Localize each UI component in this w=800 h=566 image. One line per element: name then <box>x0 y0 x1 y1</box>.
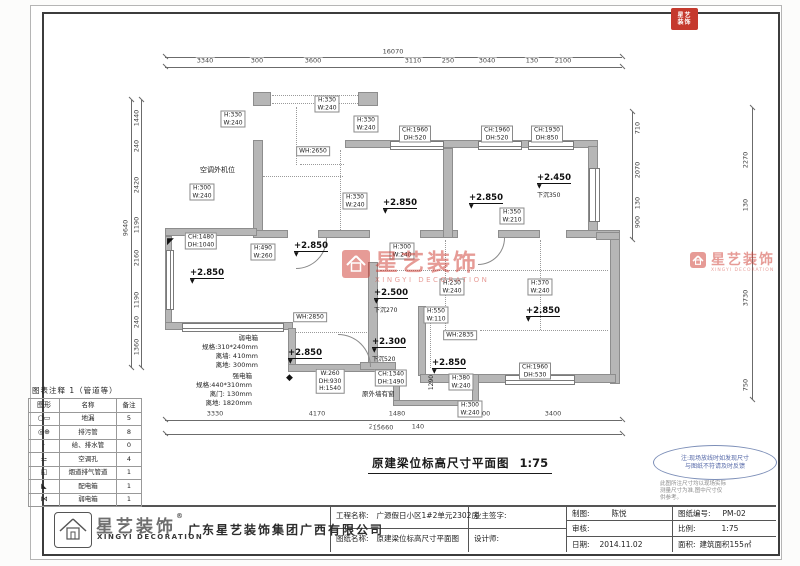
legend-item-count: 1 <box>117 493 142 507</box>
elevation-marker: +2.850▼ <box>432 350 466 374</box>
beam-size-label: H:380W:240 <box>448 374 473 391</box>
legend-item-count: 4 <box>117 453 142 467</box>
plan-annotation: 1290 <box>427 375 436 390</box>
dimension-value: 250 <box>441 58 455 65</box>
elevation-marker: +2.850▼ <box>383 190 417 214</box>
elevation-marker: +2.850▼ <box>288 340 322 364</box>
dimension-value: 2070 <box>635 161 642 180</box>
legend-row: ◱烟道排气管道1 <box>29 466 142 480</box>
field-area-value: 建筑面积155㎡ <box>700 540 752 549</box>
dimension-value: 2160 <box>134 249 141 268</box>
beam-dotted-line <box>295 332 367 333</box>
dimension-value: 140 <box>411 424 425 431</box>
field-project-value: 广源假日小区1#2单元2302房 <box>377 511 479 520</box>
legend-symbol-icon: · <box>29 439 60 453</box>
watermark-cn-text: 星艺装饰 <box>375 250 489 276</box>
dimension-value: 2270 <box>743 151 750 170</box>
dimension-value: 16070 <box>382 49 405 56</box>
beam-size-label: WH:2835 <box>443 330 477 340</box>
dimension-value: 3600 <box>304 58 323 65</box>
wall-segment <box>253 140 263 238</box>
beam-size-label: H:330W:240 <box>220 111 245 128</box>
dimension-value: 130 <box>635 196 642 210</box>
field-date-value: 2014.11.02 <box>600 540 643 549</box>
beam-size-label: W:260DH:930H:1540 <box>316 369 345 394</box>
dimension-value: 1480 <box>388 411 407 418</box>
wall-segment <box>443 148 453 238</box>
field-date: 日期:2014.11.02 <box>572 539 642 550</box>
beam-size-label: H:330W:240 <box>342 193 367 210</box>
legend-item-name: 配电箱 <box>60 480 117 494</box>
legend-table: 图表注释 1（管道等） 图形 名称 备注 ○▭地漏5◎⊕排污管8·给、排水管0⚍… <box>28 385 142 507</box>
beam-size-label: CH:1960DH:530 <box>519 363 551 380</box>
dimension-value: 3730 <box>743 289 750 308</box>
site-note-small: 此图所注尺寸均以现场实际 测量尺寸为准,图中尺寸仅 供参考。 <box>660 481 726 502</box>
legend-header-count: 备注 <box>117 399 142 413</box>
legend-symbol-icon: ◣ <box>29 480 60 494</box>
drawing-title-text: 原建梁位标高尺寸平面图 <box>372 456 510 470</box>
field-scale-value: 1:75 <box>722 524 739 533</box>
dimension-value: 1360 <box>134 338 141 357</box>
drawing-title-scale: 1:75 <box>520 456 549 470</box>
dimension-line <box>165 67 622 68</box>
window <box>589 168 600 222</box>
beam-size-label: CH:1340DH:1490 <box>375 370 407 387</box>
dimension-value: 240 <box>134 139 141 153</box>
titleblock-row-line <box>566 536 776 537</box>
beam-size-label: CH:1930DH:850 <box>531 126 563 143</box>
watermark-en-text: XINGYI DECORATION <box>375 276 489 284</box>
dimension-value: 9640 <box>123 219 130 238</box>
registered-mark: ® <box>176 512 186 520</box>
watermark-cn-text: 星艺装饰 <box>711 252 775 268</box>
xingyi-logo-icon <box>342 250 370 278</box>
plan-symbol: ◤ <box>167 238 174 247</box>
legend-symbol-icon: ○▭ <box>29 412 60 426</box>
dimension-line <box>165 434 622 435</box>
field-owner-sign: 业主签字: <box>474 510 507 521</box>
legend-row: ◣配电箱1 <box>29 480 142 494</box>
field-draft-value: 陈悦 <box>612 509 627 518</box>
wall-segment <box>253 230 288 238</box>
plan-annotation: 原外墙有窗 <box>362 390 395 399</box>
field-draft: 制图:陈悦 <box>572 508 627 519</box>
beam-size-label: WH:2650 <box>296 146 330 156</box>
elevation-marker: +2.850▼ <box>294 233 328 257</box>
wall-segment <box>596 232 620 240</box>
dimension-value: 130 <box>743 198 750 212</box>
stamp-line-2: 装饰 <box>677 19 691 26</box>
legend-item-count: 1 <box>117 480 142 494</box>
elevation-marker: +2.850▼ <box>469 185 503 209</box>
titleblock-divider <box>566 505 567 552</box>
note-line-2: 与图纸不符请及时反馈 <box>685 463 745 471</box>
plan-annotation: 弱电箱规格:310*240mm离墙: 410mm离地: 300mm <box>178 334 258 370</box>
elevation-marker: +2.450▼下沉350 <box>537 165 571 199</box>
field-drawing: 图纸名称:原建梁位标高尺寸平面图 <box>336 533 459 544</box>
plan-symbol: ◆ <box>286 374 293 383</box>
legend-symbol-icon: ⋈ <box>29 493 60 507</box>
dimension-value: 3110 <box>404 58 423 65</box>
beam-size-label: CH:1480DH:1040 <box>185 233 217 250</box>
field-drawing-value: 原建梁位标高尺寸平面图 <box>377 534 460 543</box>
beam-size-label: CH:1960DH:520 <box>481 126 513 143</box>
beam-size-label: H:490W:260 <box>250 244 275 261</box>
field-no-value: PM-02 <box>723 509 746 518</box>
field-scale: 比例:1:75 <box>678 523 738 534</box>
legend-item-name: 给、排水管 <box>60 439 117 453</box>
beam-dotted-line <box>340 150 341 232</box>
drawing-title: 原建梁位标高尺寸平面图1:75 <box>368 455 552 474</box>
titleblock-separator <box>42 505 776 507</box>
wall-segment <box>498 230 540 238</box>
elevation-marker: +2.500▼下沉270 <box>374 280 408 314</box>
beam-size-label: H:300W:240 <box>457 401 482 418</box>
beam-dotted-line <box>263 176 343 177</box>
dimension-value: 1440 <box>134 109 141 128</box>
elevation-marker: +2.850▼ <box>190 260 224 284</box>
field-designer: 设计师: <box>474 533 499 544</box>
note-small-1: 此图所注尺寸均以现场实际 <box>660 481 726 488</box>
elevation-marker: +2.300▼下沉520 <box>372 329 406 363</box>
wall-segment <box>253 92 271 106</box>
wall-segment <box>358 92 378 106</box>
plan-annotation: 空调外机位 <box>200 166 235 175</box>
legend-symbol-icon: ⚍ <box>29 453 60 467</box>
beam-size-label: H:300W:240 <box>189 184 214 201</box>
stamp-line-1: 星艺 <box>677 12 691 19</box>
note-small-2: 测量尺寸为准,图中尺寸仅 <box>660 488 726 495</box>
elevation-marker: +2.850▼ <box>526 298 560 322</box>
dimension-value: 3040 <box>478 58 497 65</box>
field-audit: 审核: <box>572 523 590 534</box>
site-note-ellipse: 注:现场放线时如发现尺寸 与图纸不符请及时反馈 <box>653 445 777 480</box>
beam-dotted-line <box>480 330 608 331</box>
watermark-en-text: XINGYI DECORATION <box>711 268 775 273</box>
dimension-value: 1190 <box>134 216 141 235</box>
dimension-value: 3400 <box>544 411 563 418</box>
legend-header-name: 名称 <box>60 399 117 413</box>
right-watermark: 星艺装饰 XINGYI DECORATION <box>690 252 775 273</box>
field-project: 工程名称:广源假日小区1#2单元2302房 <box>336 510 479 521</box>
dimension-line <box>141 100 142 368</box>
beam-dotted-line <box>300 164 344 165</box>
red-company-stamp: 星艺 装饰 <box>671 8 698 30</box>
legend-symbol-icon: ◱ <box>29 466 60 480</box>
legend-item-name: 排污管 <box>60 426 117 440</box>
beam-size-label: CH:1960DH:520 <box>399 126 431 143</box>
dimension-value: 1190 <box>134 291 141 310</box>
legend-item-count: 1 <box>117 466 142 480</box>
legend-row: ⚍空调孔4 <box>29 453 142 467</box>
note-small-3: 供参考。 <box>660 495 726 502</box>
dimension-value: 240 <box>134 315 141 329</box>
beam-dotted-line <box>296 107 297 165</box>
beam-size-label: H:550W:110 <box>423 307 448 324</box>
dimension-value: 710 <box>635 121 642 135</box>
titleblock-row-line <box>566 520 776 521</box>
note-line-1: 注:现场放线时如发现尺寸 <box>681 455 749 463</box>
door-swing <box>338 334 371 367</box>
plan-annotation: 强电箱规格:440*310mm离门: 130mm离地: 1820mm <box>168 372 252 408</box>
field-drawing-no: 图纸编号:PM-02 <box>678 508 746 519</box>
dimension-value: 3330 <box>206 411 225 418</box>
legend-item-count: 0 <box>117 439 142 453</box>
dimension-value: 15660 <box>372 425 395 432</box>
dimension-value: 900 <box>635 215 642 229</box>
beam-size-label: H:350W:210 <box>499 208 524 225</box>
legend-item-count: 5 <box>117 412 142 426</box>
legend-item-name: 弱电箱 <box>60 493 117 507</box>
dimension-value: 2420 <box>134 176 141 195</box>
wall-segment <box>610 236 620 384</box>
legend-title: 图表注释 1（管道等） <box>32 385 142 396</box>
dimension-value: 300 <box>250 58 264 65</box>
legend-item-count: 8 <box>117 426 142 440</box>
dimension-value: 4170 <box>308 411 327 418</box>
field-area: 面积:建筑面积155㎡ <box>678 539 751 550</box>
legend-row: ◎⊕排污管8 <box>29 426 142 440</box>
legend-row: ⋈弱电箱1 <box>29 493 142 507</box>
dimension-value: 750 <box>743 378 750 392</box>
beam-size-label: WH:2850 <box>293 312 327 322</box>
window <box>182 323 284 332</box>
center-watermark: 星艺装饰 XINGYI DECORATION <box>342 250 489 284</box>
titleblock-divider <box>672 505 673 552</box>
window <box>166 250 174 310</box>
beam-size-label: H:330W:240 <box>314 96 339 113</box>
beam-size-label: H:370W:240 <box>527 279 552 296</box>
legend-symbol-icon: ◎⊕ <box>29 426 60 440</box>
legend-item-name: 地漏 <box>60 412 117 426</box>
xingyi-logo-icon <box>690 252 706 268</box>
dimension-value: 3340 <box>196 58 215 65</box>
legend-item-name: 烟道排气管道 <box>60 466 117 480</box>
dimension-line <box>165 420 622 421</box>
legend-item-name: 空调孔 <box>60 453 117 467</box>
dimension-value: 2100 <box>554 58 573 65</box>
legend-header-icon: 图形 <box>29 399 60 413</box>
legend-row: ○▭地漏5 <box>29 412 142 426</box>
legend-row: ·给、排水管0 <box>29 439 142 453</box>
company-logo-icon <box>54 512 92 548</box>
beam-size-label: H:330W:240 <box>353 116 378 133</box>
dimension-value: 130 <box>525 58 539 65</box>
